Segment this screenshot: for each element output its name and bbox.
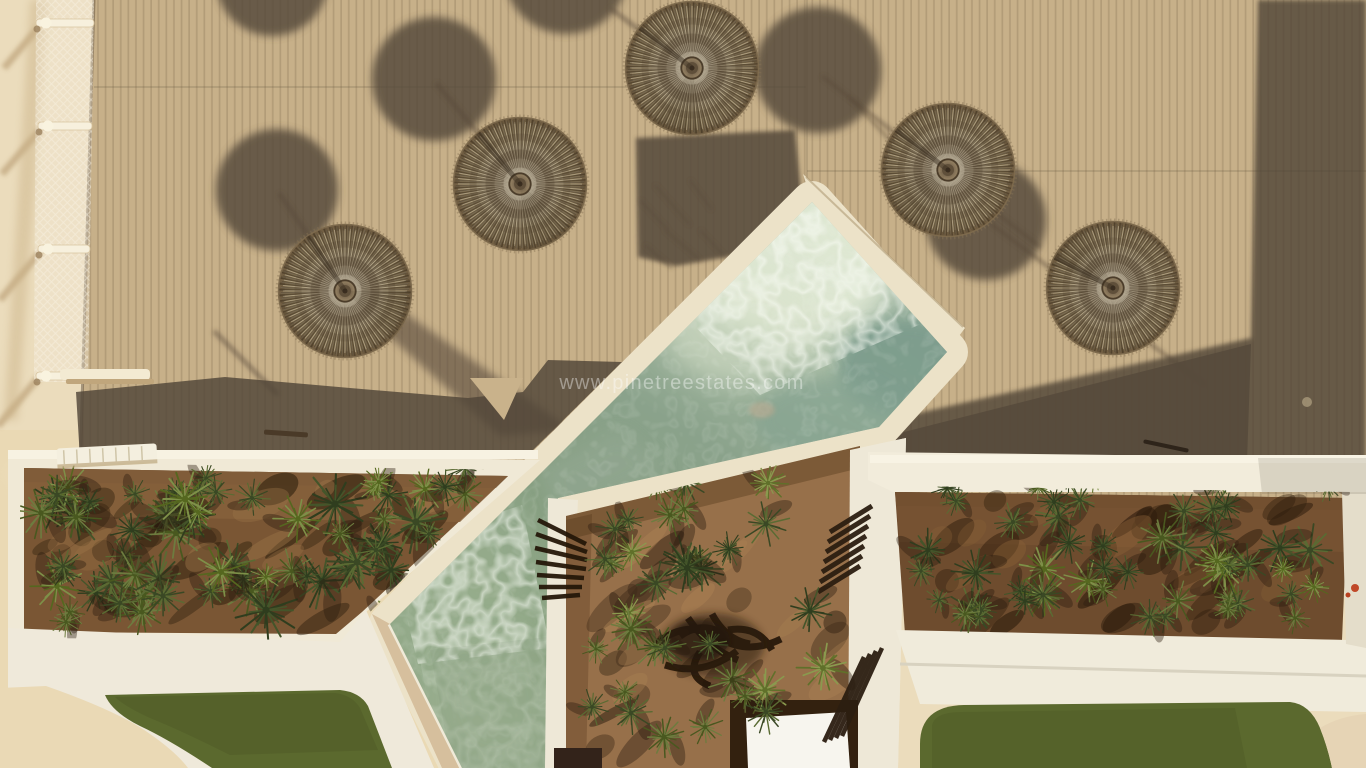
svg-text:www.pinetreestates.com: www.pinetreestates.com — [558, 372, 804, 394]
